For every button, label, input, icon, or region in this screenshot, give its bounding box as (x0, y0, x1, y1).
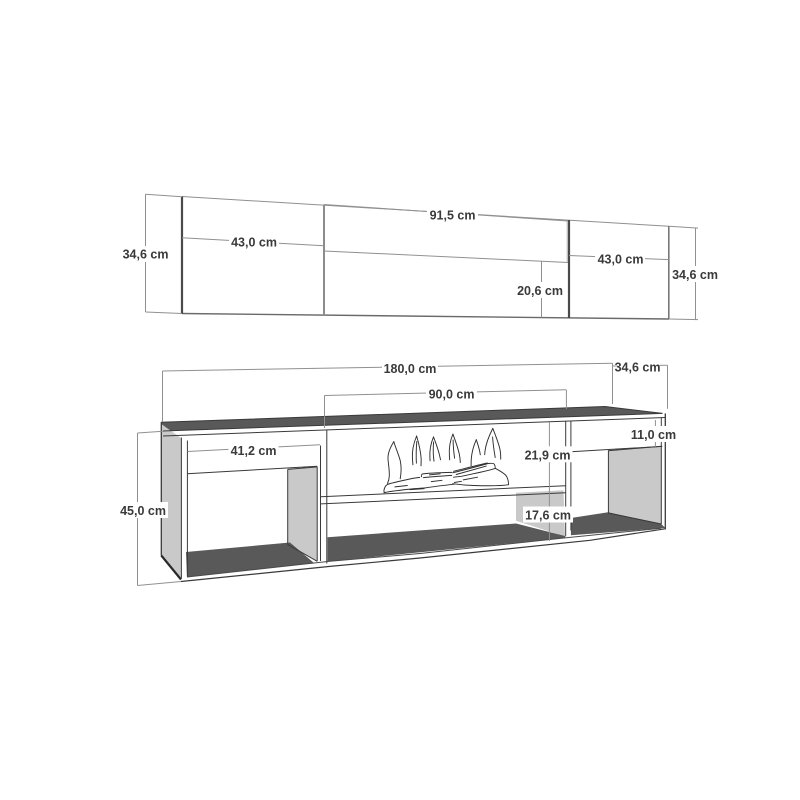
svg-text:34,6 cm: 34,6 cm (123, 248, 169, 262)
svg-text:20,6 cm: 20,6 cm (517, 284, 563, 298)
svg-text:17,6 cm: 17,6 cm (525, 509, 571, 523)
svg-text:43,0 cm: 43,0 cm (598, 253, 644, 267)
svg-text:21,9 cm: 21,9 cm (525, 448, 571, 462)
svg-text:91,5 cm: 91,5 cm (430, 209, 476, 223)
svg-text:45,0 cm: 45,0 cm (120, 504, 166, 518)
svg-text:180,0 cm: 180,0 cm (384, 362, 437, 376)
svg-text:34,6 cm: 34,6 cm (672, 268, 718, 282)
svg-text:43,0 cm: 43,0 cm (231, 236, 277, 250)
svg-text:11,0 cm: 11,0 cm (631, 428, 676, 442)
svg-text:90,0 cm: 90,0 cm (429, 388, 475, 402)
svg-text:41,2 cm: 41,2 cm (231, 444, 277, 458)
svg-text:34,6 cm: 34,6 cm (615, 361, 661, 375)
